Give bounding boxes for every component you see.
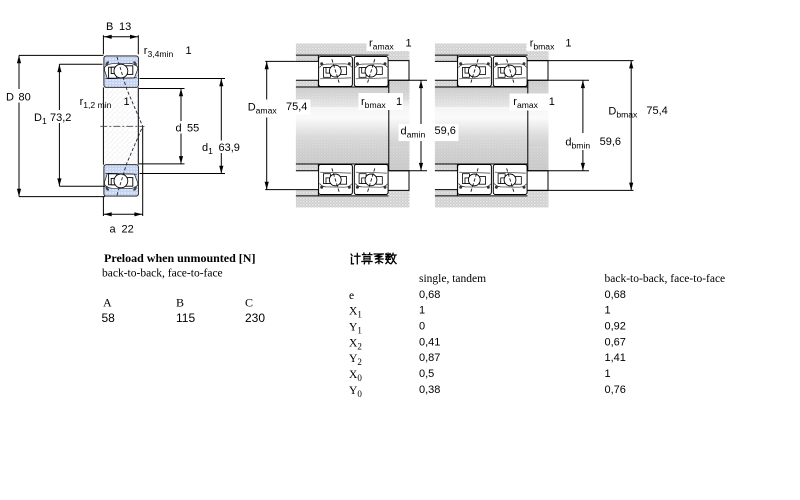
svg-text:1: 1 <box>419 305 425 317</box>
svg-text:0,68: 0,68 <box>605 289 626 301</box>
svg-text:75,4: 75,4 <box>646 105 667 117</box>
svg-text:1: 1 <box>605 368 611 380</box>
svg-text:1: 1 <box>396 96 402 108</box>
svg-text:back-to-back, face-to-face: back-to-back, face-to-face <box>605 273 726 285</box>
svg-text:Y0: Y0 <box>349 385 362 399</box>
svg-text:55: 55 <box>187 123 199 135</box>
svg-text:0,87: 0,87 <box>419 352 440 364</box>
svg-text:X1: X1 <box>349 306 362 320</box>
svg-text:D1: D1 <box>34 112 47 126</box>
svg-text:1: 1 <box>406 38 412 50</box>
svg-text:13: 13 <box>119 21 131 33</box>
svg-text:1: 1 <box>124 96 130 108</box>
svg-text:1: 1 <box>605 305 611 317</box>
svg-text:B: B <box>106 21 113 33</box>
svg-text:r3,4min: r3,4min <box>144 45 174 59</box>
svg-text:single, tandem: single, tandem <box>419 273 486 285</box>
svg-text:back-to-back, face-to-face: back-to-back, face-to-face <box>102 268 223 280</box>
svg-text:X2: X2 <box>349 337 362 351</box>
svg-text:73,2: 73,2 <box>50 112 71 124</box>
svg-text:1: 1 <box>186 45 192 57</box>
svg-text:1,41: 1,41 <box>605 352 626 364</box>
svg-text:115: 115 <box>176 311 195 325</box>
svg-text:Y1: Y1 <box>349 322 362 336</box>
svg-text:0,67: 0,67 <box>605 336 626 348</box>
svg-text:B: B <box>176 296 184 310</box>
svg-text:58: 58 <box>102 311 116 325</box>
svg-text:1: 1 <box>565 38 571 50</box>
svg-text:a: a <box>110 224 117 236</box>
svg-text:59,6: 59,6 <box>435 125 456 137</box>
svg-text:Dbmax: Dbmax <box>608 106 638 120</box>
svg-text:D: D <box>6 92 14 104</box>
svg-text:230: 230 <box>245 311 265 325</box>
svg-text:0,38: 0,38 <box>419 384 440 396</box>
svg-text:d: d <box>176 123 182 135</box>
svg-text:e: e <box>349 290 354 302</box>
svg-text:0,76: 0,76 <box>605 384 626 396</box>
svg-text:22: 22 <box>122 224 134 236</box>
svg-text:80: 80 <box>19 92 31 104</box>
svg-text:A: A <box>103 296 112 310</box>
svg-text:59,6: 59,6 <box>600 136 621 148</box>
svg-text:0,68: 0,68 <box>419 289 440 301</box>
svg-text:63,9: 63,9 <box>219 142 240 154</box>
svg-text:0: 0 <box>419 321 425 333</box>
svg-text:0,41: 0,41 <box>419 336 440 348</box>
svg-text:Y2: Y2 <box>349 353 362 367</box>
svg-text:0,5: 0,5 <box>419 368 434 380</box>
svg-text:C: C <box>245 296 253 310</box>
svg-text:75,4: 75,4 <box>286 101 307 113</box>
svg-text:0,92: 0,92 <box>605 321 626 333</box>
svg-text:1: 1 <box>549 96 555 108</box>
svg-text:Preload when unmounted [N]: Preload when unmounted [N] <box>104 251 255 265</box>
svg-text:X0: X0 <box>349 369 362 383</box>
